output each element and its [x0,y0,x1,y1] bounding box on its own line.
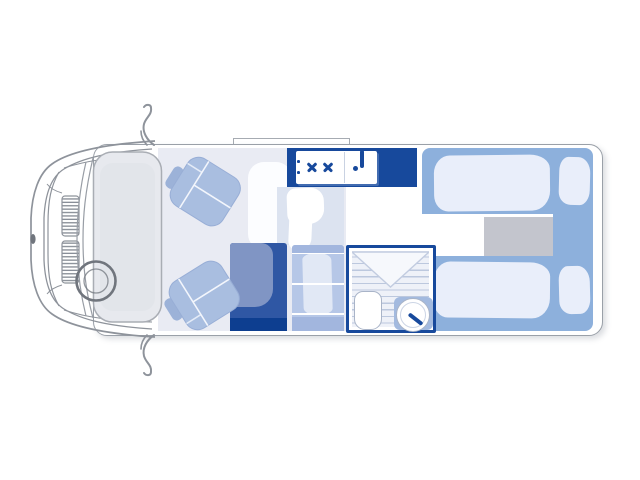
burner-icon [322,161,334,173]
duvet-top-bed [434,154,551,211]
bench-seam [292,313,344,315]
windscreen [77,158,93,318]
bench-seam [292,253,344,255]
toilet [354,291,382,330]
pillow-bottom-bed [558,266,590,315]
wardrobe-door [230,243,273,307]
motorhome-floorplan [0,0,640,480]
bumper-detail [30,234,35,244]
wing-mirror-top-icon [141,105,154,145]
sink-drain-icon [353,166,358,171]
pillow-top-bed [558,157,590,206]
duvet-bottom-bed [434,261,551,318]
bench-base-trim [292,317,344,331]
burner-icon [306,161,318,173]
shower-curtain-flap-icon [352,251,429,289]
dinette-table-leaf [288,200,313,252]
radiator-grille-icon [62,196,79,283]
sink-tap-icon [360,150,364,168]
hob-sink-divider [344,152,345,183]
hob-knob-icon [297,171,300,174]
hob-knob-icon [297,160,300,163]
wing-mirror-bottom-icon [141,335,154,375]
center-chest [484,217,553,256]
wardrobe-base-trim [230,318,287,331]
bench-seam [292,283,344,285]
